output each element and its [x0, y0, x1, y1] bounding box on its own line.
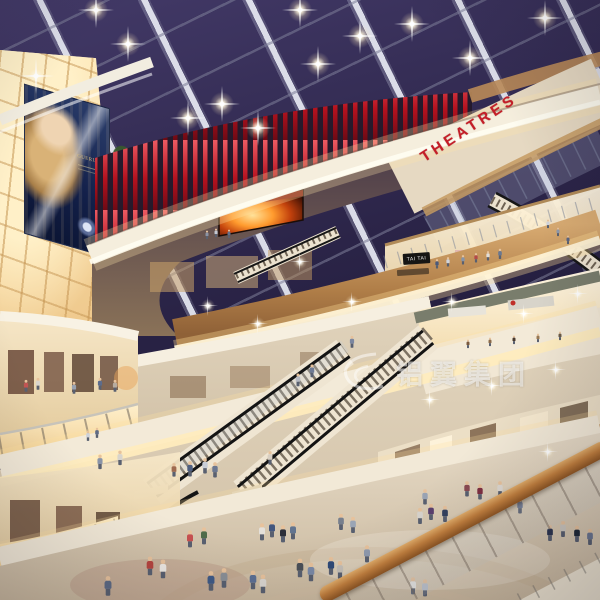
person [117, 451, 122, 465]
person-legs [202, 538, 206, 544]
person-body [442, 510, 448, 517]
person-body [269, 524, 275, 531]
person [498, 249, 502, 259]
tai-tai-store-sign: TAI TAI [403, 252, 431, 265]
ceiling-light [175, 105, 201, 131]
person [113, 380, 117, 392]
distant-storefront [150, 262, 194, 292]
person-body [208, 576, 215, 584]
person-legs [106, 589, 111, 595]
person [212, 462, 217, 477]
person [260, 575, 267, 593]
person-legs [25, 388, 28, 392]
person-head [106, 576, 110, 580]
person-body [417, 512, 423, 519]
person-body [337, 565, 343, 572]
person [446, 257, 449, 266]
person-legs [203, 468, 207, 473]
person [297, 559, 304, 577]
person-body [147, 561, 154, 569]
person [201, 527, 207, 544]
person-body [308, 567, 315, 575]
person [559, 332, 562, 340]
person-legs [329, 569, 333, 575]
person [308, 563, 315, 581]
person [587, 529, 593, 545]
person [477, 484, 482, 499]
person-legs [298, 571, 303, 577]
person-legs [462, 261, 464, 264]
person-body [160, 564, 167, 572]
person-body [574, 530, 580, 537]
person [24, 380, 28, 392]
person [537, 334, 540, 342]
person [268, 451, 273, 464]
person [259, 523, 265, 540]
person-legs [310, 373, 313, 377]
person-body [560, 525, 566, 532]
ceiling-light [23, 63, 49, 89]
ceiling-light [532, 5, 558, 31]
corridor-warm-glow [114, 366, 138, 390]
person [364, 545, 370, 562]
sparkle-light [445, 295, 459, 309]
person [428, 504, 434, 520]
store-logo-mark [511, 301, 516, 306]
person-body [290, 526, 296, 533]
person-legs [228, 235, 230, 238]
person [417, 508, 423, 524]
person-legs [588, 539, 592, 544]
person [486, 251, 489, 260]
person-body [587, 533, 593, 540]
person [557, 228, 560, 236]
person-head [222, 568, 226, 572]
person-legs [206, 236, 208, 239]
ceiling-light [83, 0, 109, 23]
person [202, 458, 207, 473]
person [310, 364, 315, 376]
person-legs [548, 535, 552, 540]
person [208, 571, 215, 590]
sparkle-light [201, 299, 215, 313]
developer-watermark: 铝翼集团 [330, 342, 590, 402]
person-legs [172, 472, 175, 476]
person-legs [436, 265, 438, 268]
person-legs [478, 494, 482, 499]
person-body [201, 531, 207, 538]
person [187, 461, 192, 476]
person [474, 253, 477, 262]
person-legs [98, 464, 102, 469]
person-legs [161, 572, 166, 578]
person-body [280, 529, 286, 536]
sparkle-light [293, 255, 307, 269]
person-legs [547, 225, 549, 228]
person-body [364, 549, 370, 556]
person [72, 382, 76, 394]
person-legs [87, 437, 90, 440]
person-legs [418, 518, 422, 523]
person [147, 557, 154, 575]
person [574, 526, 580, 542]
person-legs [365, 556, 369, 562]
person-legs [487, 257, 489, 260]
mall-atrium-rendering: GUERLAIN [0, 0, 600, 600]
person-head [261, 575, 265, 579]
person-legs [309, 575, 314, 581]
person [280, 525, 286, 542]
person-legs [281, 536, 285, 542]
person-legs [188, 541, 192, 547]
person-legs [575, 536, 579, 541]
person-legs [447, 263, 449, 266]
person-legs [99, 386, 102, 390]
person [442, 506, 448, 522]
person [547, 220, 550, 228]
person [269, 520, 275, 537]
person-head [251, 571, 255, 575]
watermark-logo-swirl [330, 346, 396, 398]
person-legs [291, 533, 295, 539]
sparkle-light [345, 295, 359, 309]
ceiling-light [347, 23, 373, 49]
sparkle-light [541, 445, 555, 459]
person-legs [339, 524, 343, 529]
person-legs [465, 491, 469, 496]
person [172, 463, 177, 476]
person [250, 571, 257, 589]
sparkle-light [517, 307, 531, 321]
person [98, 378, 102, 390]
distant-storefront [170, 376, 206, 398]
person-body [297, 563, 304, 571]
person-body [328, 561, 334, 568]
person [160, 560, 167, 578]
person-legs [188, 471, 192, 476]
person [206, 231, 209, 239]
person [290, 522, 296, 539]
person-body [105, 581, 112, 589]
person [296, 373, 301, 385]
person [36, 378, 40, 390]
person [86, 431, 90, 441]
ceiling-light [305, 51, 331, 77]
person [435, 259, 438, 268]
ceiling-light [115, 31, 141, 57]
person-legs [209, 584, 214, 590]
person [567, 236, 570, 244]
ceiling-light [287, 0, 313, 23]
person-legs [118, 460, 122, 465]
corridor-storefront [8, 350, 34, 394]
person [461, 255, 464, 264]
person-legs [213, 472, 217, 477]
person-head [298, 559, 302, 563]
watermark-text: 铝翼集团 [396, 353, 532, 392]
person-legs [73, 390, 76, 394]
person [464, 481, 469, 496]
person-head [148, 557, 152, 561]
sparkle-light [571, 287, 585, 301]
person [228, 230, 231, 238]
person-body [260, 579, 267, 587]
person [221, 568, 228, 587]
person [215, 229, 218, 237]
ceiling-light [399, 11, 425, 37]
person-body [187, 534, 193, 541]
person-legs [270, 531, 274, 537]
person-head [309, 563, 313, 567]
person [328, 557, 334, 574]
person-legs [559, 337, 561, 340]
person-legs [222, 581, 227, 587]
person [105, 576, 112, 595]
person-legs [114, 388, 117, 392]
person [95, 428, 99, 438]
ceiling-light [245, 115, 271, 141]
person-body [221, 573, 228, 581]
person-legs [261, 587, 266, 593]
person-body [428, 508, 434, 515]
person [338, 514, 344, 530]
person-legs [475, 259, 477, 262]
person-legs [351, 527, 355, 532]
person-legs [429, 514, 433, 519]
person-legs [567, 241, 569, 244]
distant-storefront [230, 366, 270, 388]
person-legs [215, 234, 217, 237]
person-legs [251, 583, 256, 589]
ceiling-light [457, 45, 483, 71]
person-body [350, 521, 356, 528]
person [350, 517, 356, 533]
person-legs [423, 499, 427, 504]
person-legs [296, 382, 299, 386]
person [187, 530, 193, 547]
person [422, 489, 427, 504]
person-head [161, 560, 165, 564]
person-legs [96, 434, 99, 437]
person-body [259, 527, 265, 534]
person-legs [561, 531, 565, 536]
person-legs [268, 460, 271, 464]
corridor-storefront [44, 352, 64, 392]
person-legs [37, 386, 40, 390]
person-body [250, 575, 257, 583]
person-legs [260, 534, 264, 540]
person-legs [148, 569, 153, 575]
person-head [209, 571, 213, 575]
person-legs [499, 255, 502, 258]
ceiling-light [209, 91, 235, 117]
sparkle-light [251, 317, 265, 331]
person [97, 455, 102, 469]
person-legs [557, 233, 559, 236]
person-body [338, 518, 344, 525]
